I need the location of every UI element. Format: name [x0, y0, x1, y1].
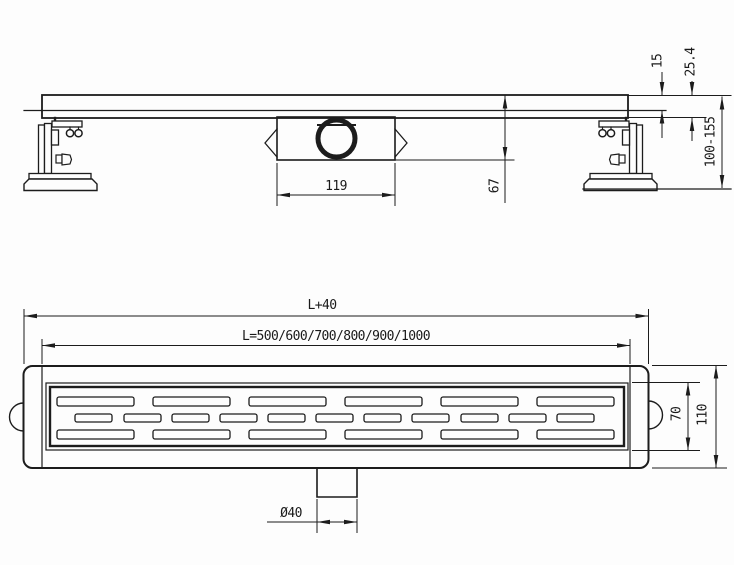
- grate-slot: [249, 397, 326, 406]
- drain-trap: [265, 117, 514, 160]
- dim-trap-length: 119: [277, 163, 395, 206]
- dim-grate-thickness-label: 15: [651, 54, 666, 68]
- dim-trap-length-label: 119: [325, 179, 347, 194]
- dim-channel-lengths-label: L=500/600/700/800/900/1000: [242, 329, 430, 344]
- grate-slot: [537, 430, 614, 439]
- grate-slots: [57, 397, 614, 439]
- grate-slot: [537, 397, 614, 406]
- dim-edge-height: 25.4: [684, 47, 699, 141]
- dim-install-height-label: 100-155: [704, 117, 719, 168]
- grate-slot: [75, 414, 112, 422]
- grate-slot: [57, 430, 134, 439]
- grate-slot: [441, 397, 518, 406]
- dim-overall-length-label: L+40: [308, 298, 337, 313]
- grate-slot: [345, 430, 422, 439]
- grate-slot: [220, 414, 257, 422]
- dim-outlet-diameter: Ø40: [267, 499, 357, 533]
- grate-slot: [153, 430, 230, 439]
- right-outlet-bump: [649, 401, 663, 429]
- bottom-outlet-stub: [317, 468, 357, 497]
- grate-slot: [461, 414, 498, 422]
- dim-body-width-label: 110: [696, 404, 711, 426]
- grate-slot: [557, 414, 594, 422]
- dim-body-width: 110: [652, 366, 727, 469]
- dim-total-depth-label: 67: [488, 179, 503, 193]
- drain-technical-drawing: 15 25.4 100-155 67 119: [0, 0, 734, 565]
- right-foot: [584, 118, 657, 191]
- grate-slot: [124, 414, 161, 422]
- dim-total-depth: 67: [488, 96, 506, 204]
- trap-left-spigot: [265, 129, 277, 157]
- grate-slot: [441, 430, 518, 439]
- dim-grate-width-label: 70: [670, 407, 685, 421]
- grate-slot: [57, 397, 134, 406]
- dim-edge-height-label: 25.4: [684, 47, 699, 77]
- grate: [46, 383, 628, 450]
- left-foot: [24, 118, 97, 191]
- trap-box: [277, 117, 395, 160]
- technical-drawing-page: 15 25.4 100-155 67 119: [0, 0, 734, 565]
- grate-slot: [345, 397, 422, 406]
- dim-channel-lengths: L=500/600/700/800/900/1000: [42, 329, 630, 364]
- plan-view: L+40 L=500/600/700/800/900/1000 70 110: [10, 298, 728, 533]
- grate-slot: [172, 414, 209, 422]
- grate-slot: [412, 414, 449, 422]
- trap-right-spigot: [395, 129, 407, 157]
- dim-grate-width: 70: [632, 383, 700, 451]
- grate-slot: [268, 414, 305, 422]
- dim-install-height: 100-155: [704, 97, 723, 189]
- side-elevation-view: 15 25.4 100-155 67 119: [24, 47, 731, 206]
- channel-body: [42, 95, 628, 118]
- grate-slot: [249, 430, 326, 439]
- dim-outlet-diameter-label: Ø40: [280, 506, 302, 521]
- grate-slot: [364, 414, 401, 422]
- grate-slot: [316, 414, 353, 422]
- grate-slot: [153, 397, 230, 406]
- left-outlet-bump: [10, 403, 24, 431]
- grate-slot: [509, 414, 546, 422]
